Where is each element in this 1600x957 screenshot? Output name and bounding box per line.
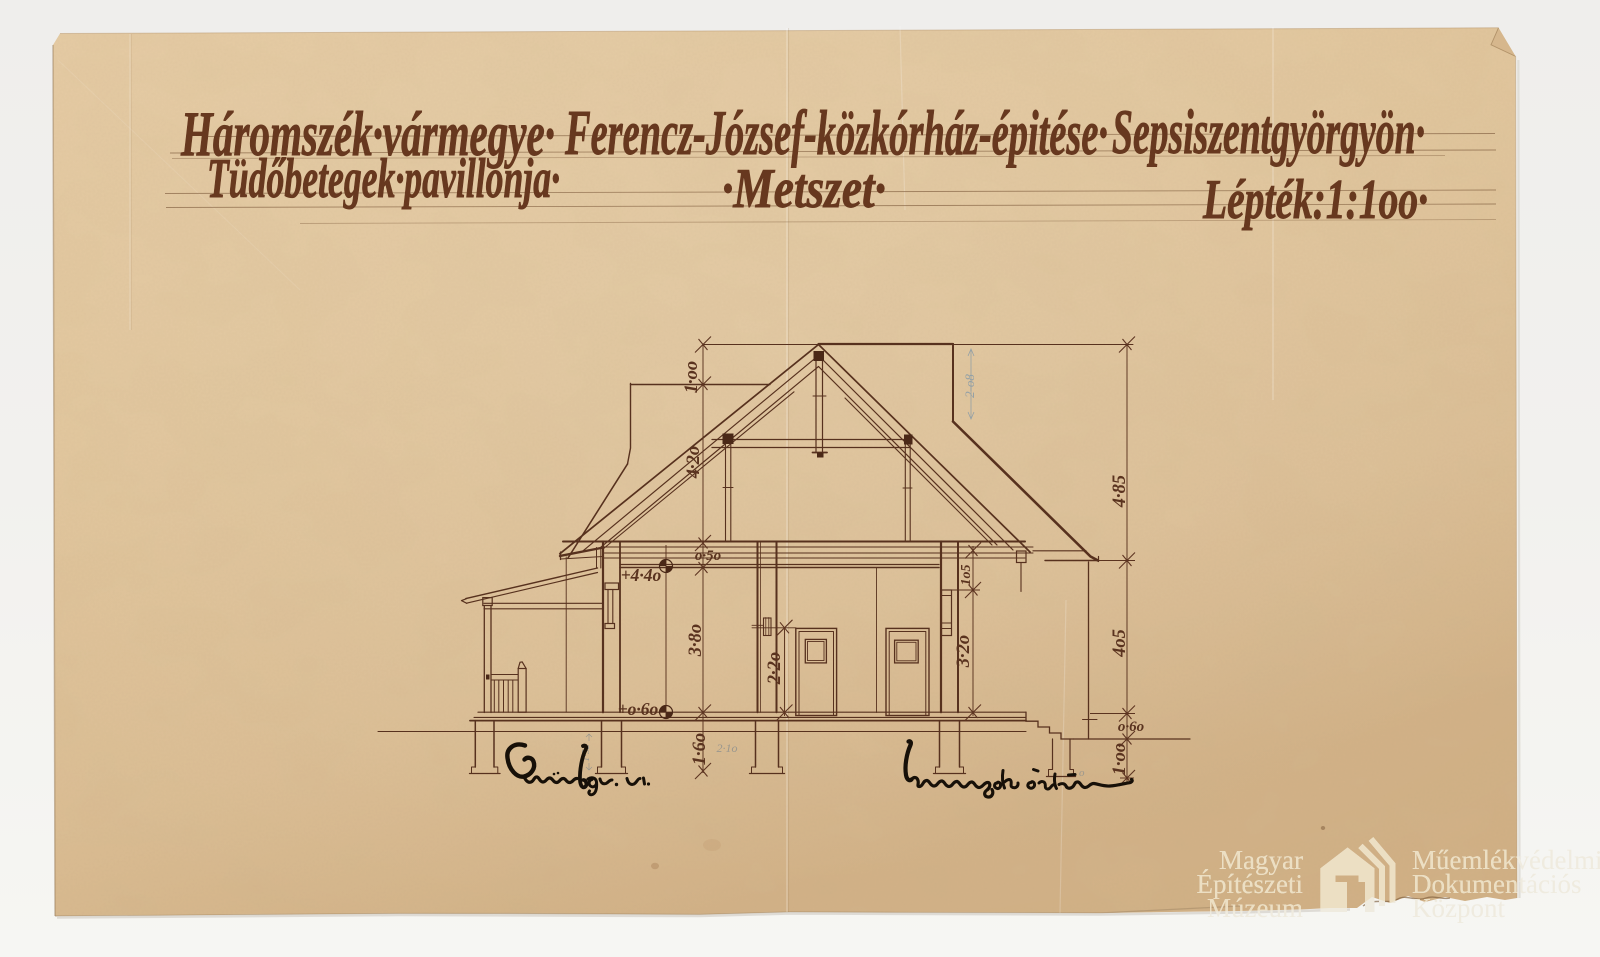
svg-text:1·oo: 1·oo [1110, 743, 1130, 775]
svg-text:Sepsiszentgyörgyön·: Sepsiszentgyörgyön· [1112, 96, 1425, 167]
svg-text:o·5o: o·5o [695, 548, 721, 564]
svg-text:3·8o: 3·8o [686, 624, 706, 657]
svg-text:1o5: 1o5 [959, 565, 974, 586]
svg-text:4·85: 4·85 [1110, 475, 1130, 508]
svg-text:Lépték:1:1oo·: Lépték:1:1oo· [1202, 169, 1428, 231]
svg-text:4·2o: 4·2o [684, 446, 704, 479]
svg-text:1·oo: 1·oo [682, 361, 702, 393]
svg-text:o·6o: o·6o [1118, 719, 1144, 735]
svg-text:Tüdőbetegek·pavillonja·: Tüdőbetegek·pavillonja· [207, 148, 560, 210]
svg-text:+4·4o: +4·4o [621, 565, 662, 585]
svg-text:4o5: 4o5 [1110, 629, 1130, 658]
svg-text:o: o [1079, 767, 1085, 779]
svg-text:2·1o: 2·1o [717, 741, 738, 755]
svg-text:3·2o: 3·2o [954, 635, 974, 668]
svg-text:+o·6o: +o·6o [618, 699, 659, 719]
svg-text:2-o8: 2-o8 [962, 374, 977, 398]
svg-text:2·2o: 2·2o [765, 652, 785, 685]
svg-text:·Metszet·: ·Metszet· [722, 158, 886, 220]
svg-text:1·6o: 1·6o [690, 733, 710, 765]
